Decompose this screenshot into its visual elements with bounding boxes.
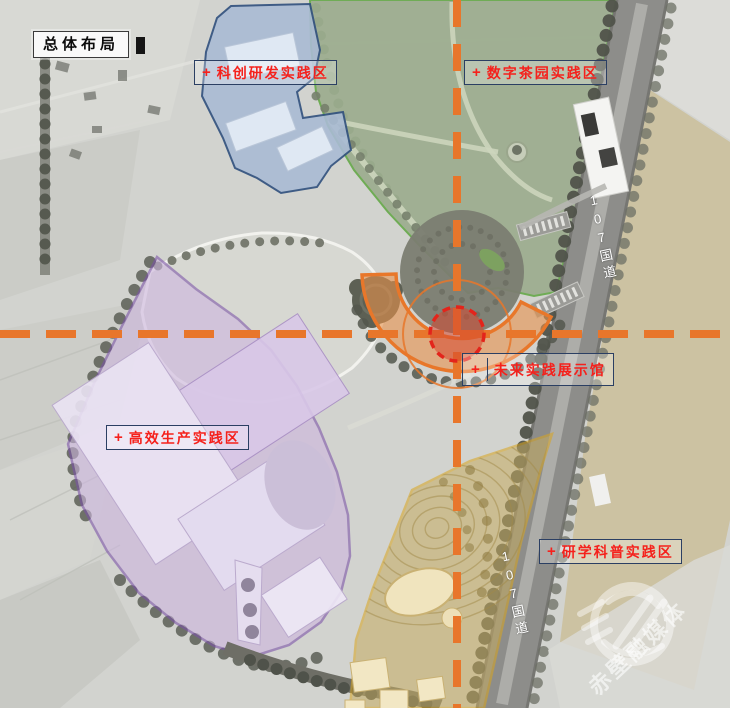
zone-label-future-exhibition-hall: + 未来实践展示馆 — [462, 353, 614, 386]
zone-label-text: 未来实践展示馆 — [494, 363, 606, 377]
plus-icon: + — [470, 358, 488, 381]
page-title: 总体布局 — [33, 31, 129, 58]
master-plan-map: 总体布局 + 科创研发实践区 + 数字茶园实践区 + 未来实践展示馆 + 高效生… — [0, 0, 730, 708]
plus-icon: + — [472, 65, 483, 80]
plus-icon: + — [547, 544, 558, 559]
title-marker — [136, 37, 145, 54]
zone-label-text: 研学科普实践区 — [562, 545, 674, 559]
zone-label-tech-innovation: + 科创研发实践区 — [194, 60, 337, 85]
site-plan-canvas — [0, 0, 730, 708]
zone-label-efficient-production: + 高效生产实践区 — [106, 425, 249, 450]
zone-label-text: 高效生产实践区 — [129, 431, 241, 445]
zone-label-digital-tea-garden: + 数字茶园实践区 — [464, 60, 607, 85]
plus-icon: + — [202, 65, 213, 80]
plus-icon: + — [114, 430, 125, 445]
zone-label-text: 数字茶园实践区 — [487, 66, 599, 80]
zone-label-text: 科创研发实践区 — [217, 66, 329, 80]
zone-label-study-science: + 研学科普实践区 — [539, 539, 682, 564]
